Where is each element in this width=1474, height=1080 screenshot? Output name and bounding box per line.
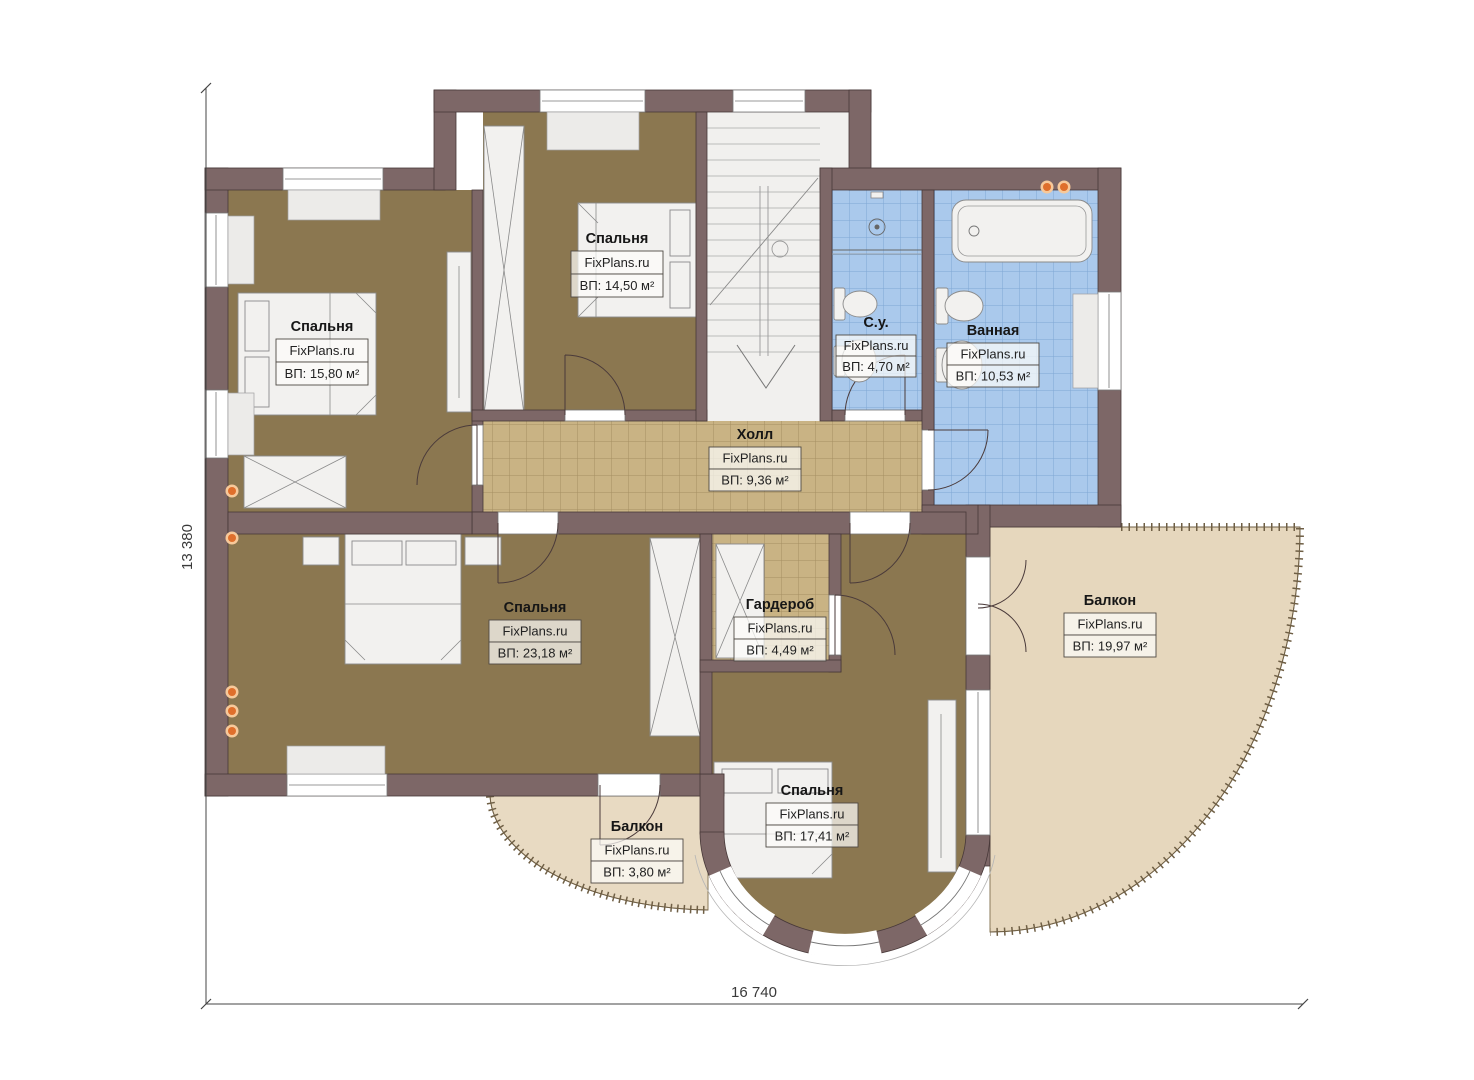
ceiling-light-dot [226,705,239,718]
window [966,690,990,835]
wall-segment [905,410,922,421]
room-area: ВП: 4,49 м² [746,643,814,658]
window-recess [287,746,385,774]
room-area: ВП: 9,36 м² [721,473,789,488]
dimension-vertical: 13 380 [179,83,211,1009]
room-area: ВП: 15,80 м² [285,366,360,381]
wall-segment [820,168,832,421]
window [1098,292,1121,390]
shower-drain-dot [875,225,880,230]
pillow [245,301,269,351]
room-area: ВП: 23,18 м² [498,646,573,661]
wall-segment [832,410,845,421]
bathtub [952,200,1092,262]
window-recess [547,112,639,150]
dimension-horizontal: 16 740 [206,984,1308,1009]
nightstand [303,537,339,565]
wall-segment [472,190,483,425]
floor-hall [483,421,922,512]
wall-segment [978,505,1121,527]
room-area: ВП: 10,53 м² [956,369,1031,384]
wall-segment [910,512,966,534]
wall-segment [472,485,483,512]
pillow [722,769,772,793]
watermark-text: FixPlans.ru [779,807,844,822]
floor-bedroom-3 [228,534,700,774]
ceiling-light-dot [1058,181,1071,194]
balcony-right-floor [990,527,1300,932]
toilet [843,291,877,317]
floor-plan-page: Спальня FixPlans.ru ВП: 15,80 м² Спальня… [0,0,1474,1080]
room-label-wardrobe: Гардероб FixPlans.ru ВП: 4,49 м² [734,597,826,661]
room-name: Ванная [967,323,1020,339]
wall-segment [922,190,934,430]
watermark-text: FixPlans.ru [604,843,669,858]
room-area: ВП: 19,97 м² [1073,639,1148,654]
room-name: Спальня [781,783,844,799]
wall-segment [820,168,1121,190]
dimension-value: 16 740 [731,984,777,1001]
window [287,774,387,796]
window-recess [1073,294,1098,388]
room-name: Гардероб [746,597,815,613]
window-recess [288,190,380,220]
window [205,213,228,287]
pillow [406,541,456,565]
room-name: Спальня [586,231,649,247]
wall-segment [829,534,841,595]
watermark-text: FixPlans.ru [584,255,649,270]
dimension-value: 13 380 [179,524,196,570]
dresser-mirror [928,700,956,872]
window [283,168,383,190]
room-name: Спальня [504,600,567,616]
balcony-right [990,527,1300,932]
ceiling-light-dot [226,532,239,545]
window [540,90,645,112]
room-name: Холл [737,427,773,443]
shower-mixer [871,192,883,198]
room-area: ВП: 17,41 м² [775,829,850,844]
room-name: Балкон [611,819,663,835]
wall-segment [472,410,565,421]
window-recess [228,393,254,455]
watermark-text: FixPlans.ru [747,621,812,636]
room-name: Балкон [1084,593,1136,609]
watermark-text: FixPlans.ru [960,347,1025,362]
room-area: ВП: 14,50 м² [580,278,655,293]
room-area: ВП: 4,70 м² [842,359,910,374]
window [733,90,805,112]
watermark-text: FixPlans.ru [722,451,787,466]
window [205,390,228,458]
pillow [670,262,690,308]
room-name: Спальня [291,319,354,335]
watermark-text: FixPlans.ru [1077,617,1142,632]
wall-segment [700,774,724,834]
wall-segment [625,410,707,421]
nightstand [465,537,501,565]
wall-segment [700,534,712,774]
pillow [670,210,690,256]
window-recess [228,216,254,284]
floor-plan: Спальня FixPlans.ru ВП: 15,80 м² Спальня… [0,0,1474,1080]
watermark-text: FixPlans.ru [289,343,354,358]
ceiling-light-dot [226,686,239,699]
room-name: С.у. [863,315,888,331]
wall-segment [700,660,841,672]
watermark-text: FixPlans.ru [502,624,567,639]
wall-segment [472,512,498,534]
ceiling-light-dot [1041,181,1054,194]
wall-segment [696,112,707,421]
wall-segment [228,512,472,534]
wall-segment [434,90,871,112]
toilet [945,291,983,321]
ceiling-light-dot [226,725,239,738]
watermark-text: FixPlans.ru [843,338,908,353]
pillow [352,541,402,565]
ceiling-light-dot [226,485,239,498]
room-area: ВП: 3,80 м² [603,865,671,880]
wall-segment [558,512,850,534]
